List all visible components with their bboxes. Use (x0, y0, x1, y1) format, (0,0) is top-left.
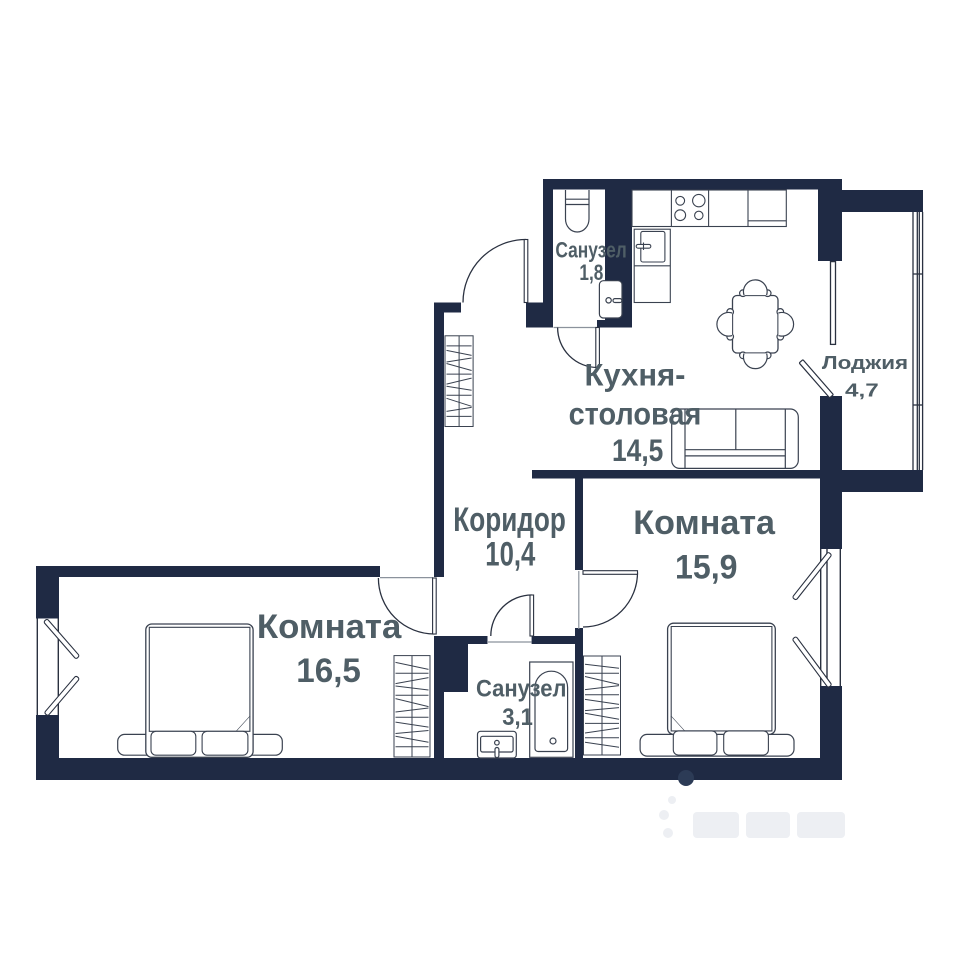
svg-text:Кухня-: Кухня- (585, 357, 686, 393)
svg-text:Лоджия: Лоджия (822, 352, 908, 373)
svg-text:Санузел: Санузел (476, 676, 567, 703)
svg-text:16,5: 16,5 (296, 652, 361, 690)
svg-text:Комната: Комната (633, 504, 775, 542)
svg-text:Комната: Комната (257, 608, 402, 646)
svg-text:1,8: 1,8 (579, 260, 603, 285)
svg-text:столовая: столовая (569, 396, 702, 432)
svg-text:3,1: 3,1 (502, 704, 533, 731)
svg-text:10,4: 10,4 (485, 535, 535, 573)
svg-text:Санузел: Санузел (555, 237, 626, 262)
svg-text:14,5: 14,5 (612, 432, 663, 468)
svg-text:15,9: 15,9 (675, 549, 738, 587)
svg-text:4,7: 4,7 (845, 380, 879, 401)
svg-text:Коридор: Коридор (453, 501, 566, 539)
